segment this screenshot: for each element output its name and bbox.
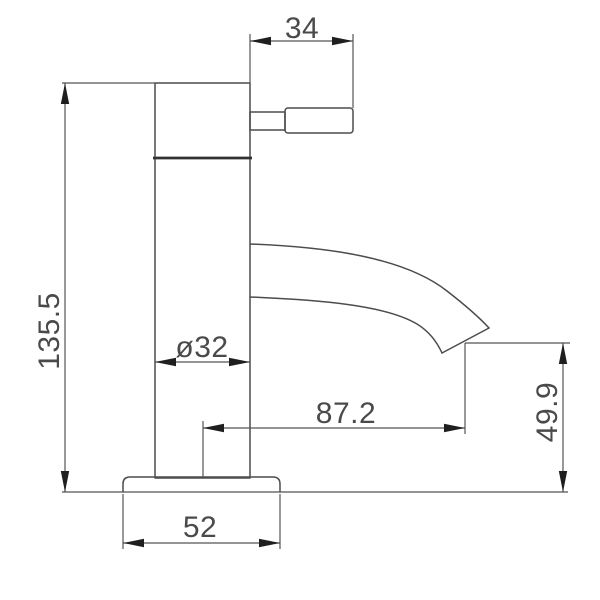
dimension-label-overall-height: 135.5 xyxy=(33,292,66,370)
arrowhead-right xyxy=(444,424,465,432)
arrowhead-right xyxy=(259,539,280,547)
faucet-outline xyxy=(123,83,489,492)
faucet-base xyxy=(123,477,280,492)
dimension-label-body-diameter: ø32 xyxy=(175,331,228,364)
dimension-label-spout-reach: 87.2 xyxy=(316,397,376,430)
dimension-base-width: 52 xyxy=(123,494,280,549)
dimension-spout-outlet-height: 49.9 xyxy=(465,343,570,492)
dimension-overall-height: 135.5 xyxy=(33,83,155,492)
arrowhead-bottom xyxy=(559,471,567,492)
technical-drawing-canvas: 34 135.5 ø32 87.2 xyxy=(0,0,600,600)
arrowhead-left xyxy=(155,358,176,366)
arrowhead-right xyxy=(229,358,250,366)
arrowhead-left xyxy=(203,424,224,432)
spout-top-edge xyxy=(250,244,489,328)
handle-knob xyxy=(285,108,353,133)
faucet-body xyxy=(155,83,250,478)
faucet-dimension-drawing: 34 135.5 ø32 87.2 xyxy=(0,0,600,600)
arrowhead-bottom xyxy=(61,471,69,492)
arrowhead-top xyxy=(61,83,69,104)
arrowhead-left xyxy=(250,37,271,45)
dimension-body-diameter: ø32 xyxy=(155,331,250,366)
dimension-label-handle-length: 34 xyxy=(285,12,319,45)
arrowhead-right xyxy=(332,37,353,45)
spout-bottom-edge xyxy=(250,297,442,353)
dimension-label-base-width: 52 xyxy=(183,511,217,544)
arrowhead-top xyxy=(559,343,567,364)
dimension-label-spout-outlet-height: 49.9 xyxy=(531,382,564,442)
dimension-handle-length: 34 xyxy=(250,12,353,108)
arrowhead-left xyxy=(123,539,144,547)
handle-stem xyxy=(250,112,285,130)
